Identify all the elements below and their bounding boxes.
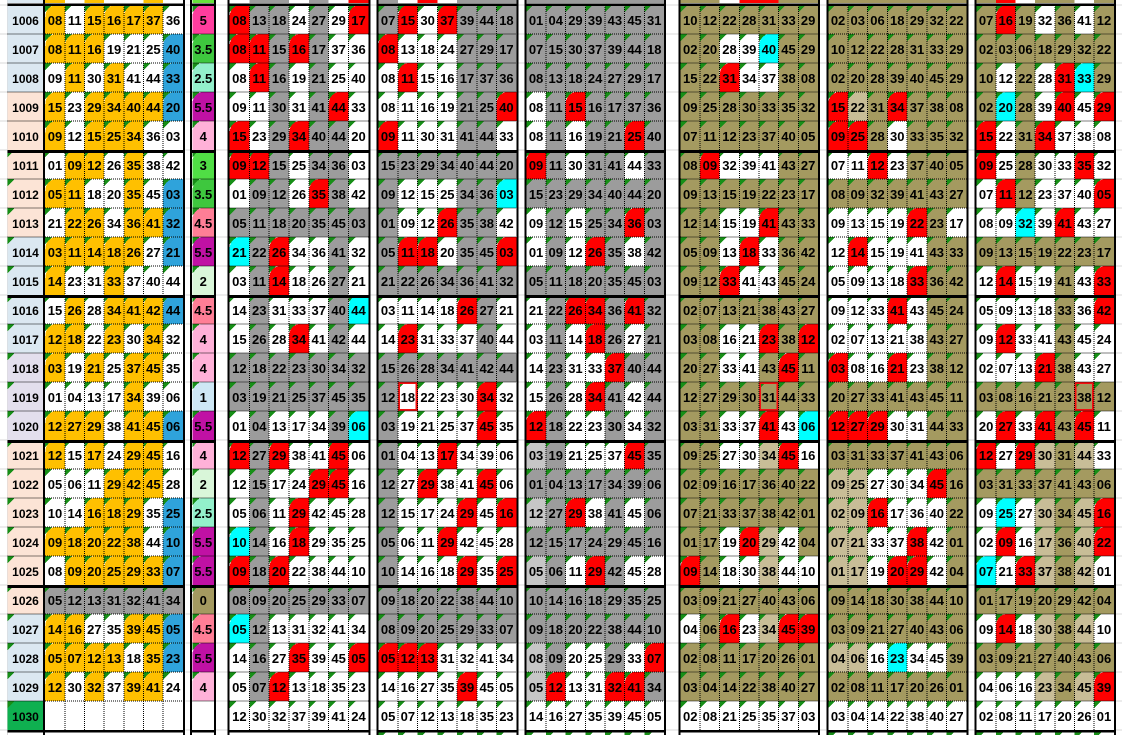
svg-text:32: 32: [949, 129, 963, 144]
svg-text:39: 39: [479, 448, 493, 463]
svg-text:14: 14: [851, 593, 866, 608]
svg-text:11: 11: [999, 187, 1013, 202]
svg-text:45: 45: [331, 216, 345, 231]
svg-text:08: 08: [529, 129, 543, 144]
svg-text:31: 31: [910, 42, 924, 57]
svg-text:33: 33: [722, 506, 736, 521]
svg-text:32: 32: [929, 13, 943, 28]
svg-text:37: 37: [146, 13, 160, 28]
svg-text:30: 30: [568, 158, 582, 173]
svg-text:21: 21: [460, 100, 474, 115]
svg-text:40: 40: [929, 158, 943, 173]
svg-text:45: 45: [929, 390, 943, 405]
svg-text:09: 09: [232, 158, 246, 173]
svg-text:22: 22: [949, 506, 963, 521]
svg-text:02: 02: [683, 42, 697, 57]
svg-text:34: 34: [460, 448, 475, 463]
svg-text:14: 14: [381, 680, 396, 695]
svg-text:27: 27: [87, 622, 101, 637]
svg-text:10: 10: [979, 71, 993, 86]
svg-text:43: 43: [608, 13, 622, 28]
svg-text:03: 03: [683, 419, 697, 434]
svg-text:08: 08: [703, 651, 717, 666]
svg-text:33: 33: [440, 332, 454, 347]
svg-text:07: 07: [851, 332, 865, 347]
svg-text:34: 34: [292, 129, 307, 144]
svg-text:1021: 1021: [12, 449, 39, 463]
svg-text:06: 06: [1097, 651, 1111, 666]
svg-text:25: 25: [331, 71, 345, 86]
svg-text:39: 39: [742, 158, 756, 173]
svg-text:43: 43: [1077, 477, 1091, 492]
svg-text:26: 26: [440, 216, 454, 231]
svg-text:45: 45: [627, 448, 641, 463]
svg-text:38: 38: [781, 71, 795, 86]
svg-text:36: 36: [1077, 303, 1091, 318]
svg-text:39: 39: [588, 13, 602, 28]
svg-text:29: 29: [1057, 42, 1071, 57]
svg-text:15: 15: [568, 100, 582, 115]
svg-text:11: 11: [871, 680, 885, 695]
svg-text:4.5: 4.5: [194, 216, 212, 231]
svg-text:42: 42: [166, 158, 180, 173]
svg-text:12: 12: [703, 274, 717, 289]
svg-text:18: 18: [420, 245, 434, 260]
svg-text:32: 32: [801, 100, 815, 115]
svg-text:15: 15: [722, 187, 736, 202]
svg-text:38: 38: [762, 680, 776, 695]
svg-text:23: 23: [1038, 187, 1052, 202]
svg-text:27: 27: [312, 13, 326, 28]
svg-text:12: 12: [48, 332, 62, 347]
svg-text:17: 17: [292, 419, 306, 434]
svg-text:43: 43: [781, 158, 795, 173]
svg-text:33: 33: [499, 129, 513, 144]
svg-text:31: 31: [703, 419, 717, 434]
svg-text:1030: 1030: [12, 710, 39, 724]
svg-text:05: 05: [381, 245, 395, 260]
svg-text:25: 25: [742, 709, 756, 724]
svg-text:24: 24: [292, 13, 307, 28]
svg-text:33: 33: [781, 13, 795, 28]
svg-text:15: 15: [549, 535, 563, 550]
svg-text:40: 40: [126, 100, 140, 115]
svg-text:38: 38: [910, 535, 924, 550]
svg-text:12: 12: [252, 622, 266, 637]
svg-text:22: 22: [1097, 535, 1111, 550]
svg-text:09: 09: [831, 216, 845, 231]
svg-text:21: 21: [87, 361, 101, 376]
svg-text:31: 31: [999, 477, 1013, 492]
svg-text:41: 41: [1038, 419, 1052, 434]
svg-text:24: 24: [949, 303, 964, 318]
svg-text:08: 08: [48, 42, 62, 57]
svg-text:17: 17: [890, 506, 904, 521]
svg-text:06: 06: [999, 680, 1013, 695]
svg-text:28: 28: [272, 332, 286, 347]
svg-text:20: 20: [851, 71, 865, 86]
svg-text:33: 33: [722, 419, 736, 434]
svg-text:44: 44: [781, 390, 796, 405]
svg-text:38: 38: [460, 593, 474, 608]
svg-text:43: 43: [781, 419, 795, 434]
svg-text:29: 29: [440, 535, 454, 550]
svg-text:28: 28: [890, 42, 904, 57]
svg-text:25: 25: [999, 506, 1013, 521]
svg-text:03: 03: [232, 390, 246, 405]
svg-text:34: 34: [588, 390, 603, 405]
svg-text:25: 25: [499, 564, 513, 579]
svg-text:10: 10: [529, 593, 543, 608]
svg-text:33: 33: [870, 303, 884, 318]
svg-text:11: 11: [549, 332, 563, 347]
svg-text:37: 37: [126, 274, 140, 289]
svg-text:13: 13: [252, 13, 266, 28]
svg-text:33: 33: [1018, 419, 1032, 434]
svg-text:09: 09: [851, 274, 865, 289]
svg-text:21: 21: [381, 274, 395, 289]
svg-text:23: 23: [440, 390, 454, 405]
svg-text:34: 34: [312, 419, 327, 434]
svg-text:16: 16: [722, 622, 736, 637]
svg-text:27: 27: [703, 361, 717, 376]
svg-text:17: 17: [647, 71, 661, 86]
svg-text:08: 08: [1097, 129, 1111, 144]
svg-text:13: 13: [292, 680, 306, 695]
svg-text:29: 29: [87, 419, 101, 434]
svg-text:14: 14: [48, 274, 63, 289]
svg-text:25: 25: [588, 651, 602, 666]
svg-text:34: 34: [351, 622, 366, 637]
svg-text:22: 22: [67, 216, 81, 231]
svg-text:33: 33: [949, 245, 963, 260]
svg-text:44: 44: [781, 564, 796, 579]
svg-text:44: 44: [479, 129, 494, 144]
svg-text:27: 27: [1038, 651, 1052, 666]
svg-text:35: 35: [292, 651, 306, 666]
svg-text:45: 45: [331, 506, 345, 521]
svg-text:05: 05: [232, 680, 246, 695]
svg-text:35: 35: [146, 506, 160, 521]
svg-text:33: 33: [870, 535, 884, 550]
svg-text:05: 05: [381, 709, 395, 724]
svg-text:14: 14: [549, 593, 564, 608]
svg-text:19: 19: [1018, 593, 1032, 608]
svg-text:29: 29: [608, 593, 622, 608]
svg-text:01: 01: [48, 390, 62, 405]
svg-text:37: 37: [627, 100, 641, 115]
svg-text:23: 23: [67, 100, 81, 115]
svg-text:34: 34: [647, 680, 662, 695]
svg-text:07: 07: [703, 303, 717, 318]
svg-text:42: 42: [146, 303, 160, 318]
svg-text:14: 14: [703, 216, 718, 231]
svg-text:11: 11: [401, 100, 415, 115]
svg-text:02: 02: [683, 709, 697, 724]
svg-text:38: 38: [929, 100, 943, 115]
svg-text:29: 29: [460, 564, 474, 579]
svg-text:35: 35: [331, 535, 345, 550]
svg-text:42: 42: [647, 245, 661, 260]
svg-text:39: 39: [126, 680, 140, 695]
svg-text:31: 31: [851, 448, 865, 463]
svg-text:23: 23: [107, 332, 121, 347]
svg-text:37: 37: [440, 13, 454, 28]
svg-text:18: 18: [252, 564, 266, 579]
svg-text:16: 16: [87, 42, 101, 57]
svg-text:1011: 1011: [12, 159, 38, 173]
svg-text:09: 09: [979, 332, 993, 347]
svg-text:35: 35: [126, 158, 140, 173]
svg-text:15: 15: [401, 506, 415, 521]
svg-text:45: 45: [929, 71, 943, 86]
svg-text:17: 17: [351, 13, 365, 28]
svg-text:18: 18: [722, 564, 736, 579]
svg-text:25: 25: [440, 187, 454, 202]
svg-text:12: 12: [831, 245, 845, 260]
svg-text:34: 34: [312, 158, 327, 173]
svg-text:40: 40: [1057, 100, 1071, 115]
svg-text:09: 09: [979, 622, 993, 637]
svg-text:15: 15: [1018, 274, 1032, 289]
svg-text:21: 21: [420, 419, 434, 434]
svg-text:13: 13: [440, 709, 454, 724]
svg-text:19: 19: [588, 129, 602, 144]
svg-text:12: 12: [1097, 390, 1111, 405]
svg-text:15: 15: [722, 216, 736, 231]
svg-text:21: 21: [499, 303, 513, 318]
svg-text:07: 07: [683, 129, 697, 144]
svg-text:05: 05: [831, 274, 845, 289]
svg-text:02: 02: [683, 477, 697, 492]
svg-text:29: 29: [126, 448, 140, 463]
svg-text:26: 26: [460, 303, 474, 318]
svg-text:36: 36: [1057, 13, 1071, 28]
svg-text:45: 45: [627, 709, 641, 724]
svg-text:20: 20: [107, 187, 121, 202]
svg-text:45: 45: [627, 564, 641, 579]
svg-text:03: 03: [979, 651, 993, 666]
svg-text:22: 22: [401, 274, 415, 289]
svg-text:43: 43: [1057, 332, 1071, 347]
svg-text:23: 23: [252, 129, 266, 144]
svg-text:09: 09: [831, 477, 845, 492]
svg-text:30: 30: [742, 564, 756, 579]
svg-text:28: 28: [166, 477, 180, 492]
svg-text:25: 25: [588, 448, 602, 463]
svg-text:18: 18: [742, 245, 756, 260]
svg-text:39: 39: [1038, 100, 1052, 115]
svg-text:42: 42: [351, 187, 365, 202]
svg-text:42: 42: [781, 506, 795, 521]
svg-text:34: 34: [910, 477, 925, 492]
svg-text:08: 08: [979, 216, 993, 231]
svg-text:25: 25: [440, 419, 454, 434]
svg-text:25: 25: [999, 158, 1013, 173]
svg-text:38: 38: [1077, 129, 1091, 144]
svg-text:08: 08: [381, 42, 395, 57]
svg-text:2: 2: [200, 274, 207, 289]
svg-text:12: 12: [67, 129, 81, 144]
svg-text:12: 12: [851, 42, 865, 57]
svg-text:03: 03: [166, 129, 180, 144]
svg-text:12: 12: [529, 535, 543, 550]
svg-text:21: 21: [647, 332, 661, 347]
svg-text:36: 36: [627, 216, 641, 231]
svg-text:16: 16: [999, 13, 1013, 28]
svg-text:08: 08: [529, 100, 543, 115]
svg-text:37: 37: [1057, 187, 1071, 202]
svg-text:22: 22: [252, 245, 266, 260]
svg-text:24: 24: [1097, 332, 1112, 347]
svg-text:05: 05: [381, 535, 395, 550]
svg-text:34: 34: [1057, 506, 1072, 521]
svg-text:11: 11: [549, 274, 563, 289]
svg-text:31: 31: [272, 303, 286, 318]
svg-text:16: 16: [870, 506, 884, 521]
svg-text:06: 06: [801, 593, 815, 608]
svg-text:33: 33: [166, 71, 180, 86]
svg-text:41: 41: [460, 129, 474, 144]
svg-text:12: 12: [683, 216, 697, 231]
svg-text:24: 24: [588, 71, 603, 86]
svg-text:42: 42: [1077, 593, 1091, 608]
svg-text:44: 44: [627, 42, 642, 57]
svg-text:30: 30: [272, 100, 286, 115]
svg-text:32: 32: [1077, 42, 1091, 57]
svg-text:38: 38: [762, 303, 776, 318]
svg-text:07: 07: [979, 564, 993, 579]
svg-text:12: 12: [549, 680, 563, 695]
svg-text:4.5: 4.5: [194, 622, 212, 637]
svg-text:26: 26: [87, 216, 101, 231]
svg-text:18: 18: [549, 622, 563, 637]
svg-text:07: 07: [999, 361, 1013, 376]
svg-text:15: 15: [381, 158, 395, 173]
svg-text:09: 09: [252, 593, 266, 608]
svg-text:28: 28: [1038, 71, 1052, 86]
svg-text:30: 30: [890, 477, 904, 492]
svg-text:11: 11: [851, 158, 865, 173]
svg-text:1018: 1018: [12, 362, 39, 376]
svg-text:28: 28: [351, 506, 365, 521]
svg-text:22: 22: [801, 477, 815, 492]
svg-text:38: 38: [762, 564, 776, 579]
svg-text:41: 41: [479, 274, 493, 289]
svg-text:4: 4: [200, 332, 208, 347]
svg-text:17: 17: [420, 506, 434, 521]
svg-text:43: 43: [781, 593, 795, 608]
svg-text:22: 22: [1057, 245, 1071, 260]
svg-text:18: 18: [67, 535, 81, 550]
svg-text:29: 29: [910, 564, 924, 579]
svg-text:33: 33: [146, 564, 160, 579]
svg-text:42: 42: [781, 535, 795, 550]
svg-text:40: 40: [460, 158, 474, 173]
svg-text:12: 12: [87, 651, 101, 666]
svg-text:14: 14: [703, 564, 718, 579]
svg-text:20: 20: [87, 535, 101, 550]
svg-text:21: 21: [312, 71, 326, 86]
svg-text:01: 01: [801, 651, 815, 666]
svg-text:25: 25: [851, 129, 865, 144]
svg-text:1014: 1014: [12, 246, 39, 260]
svg-text:15: 15: [420, 187, 434, 202]
svg-text:40: 40: [608, 187, 622, 202]
svg-text:13: 13: [568, 680, 582, 695]
svg-text:31: 31: [292, 622, 306, 637]
svg-text:19: 19: [107, 42, 121, 57]
svg-text:27: 27: [999, 448, 1013, 463]
svg-text:5.5: 5.5: [194, 100, 212, 115]
svg-text:29: 29: [801, 13, 815, 28]
svg-text:12: 12: [232, 477, 246, 492]
svg-text:13: 13: [401, 42, 415, 57]
svg-text:33: 33: [1057, 303, 1071, 318]
svg-text:09: 09: [703, 158, 717, 173]
svg-text:29: 29: [87, 100, 101, 115]
svg-text:36: 36: [351, 42, 365, 57]
svg-text:16: 16: [949, 477, 963, 492]
svg-text:45: 45: [627, 535, 641, 550]
svg-text:44: 44: [146, 71, 161, 86]
svg-text:03: 03: [851, 13, 865, 28]
svg-text:14: 14: [999, 274, 1014, 289]
svg-text:1013: 1013: [12, 217, 39, 231]
svg-text:16: 16: [1018, 535, 1032, 550]
svg-text:07: 07: [252, 680, 266, 695]
svg-text:40: 40: [499, 100, 513, 115]
svg-text:18: 18: [107, 506, 121, 521]
svg-text:18: 18: [499, 13, 513, 28]
svg-text:05: 05: [949, 158, 963, 173]
svg-text:44: 44: [627, 187, 642, 202]
svg-text:38: 38: [292, 448, 306, 463]
svg-text:45: 45: [331, 477, 345, 492]
svg-text:06: 06: [499, 477, 513, 492]
svg-text:35: 35: [1077, 158, 1091, 173]
svg-text:34: 34: [588, 187, 603, 202]
svg-text:20: 20: [910, 680, 924, 695]
svg-text:17: 17: [87, 448, 101, 463]
svg-text:4: 4: [200, 680, 208, 695]
svg-text:38: 38: [910, 332, 924, 347]
svg-text:23: 23: [549, 361, 563, 376]
svg-text:03: 03: [351, 158, 365, 173]
svg-text:41: 41: [1057, 216, 1071, 231]
svg-text:20: 20: [762, 651, 776, 666]
svg-text:28: 28: [870, 129, 884, 144]
svg-text:05: 05: [232, 622, 246, 637]
svg-text:14: 14: [232, 303, 247, 318]
svg-text:28: 28: [420, 361, 434, 376]
svg-text:39: 39: [331, 419, 345, 434]
svg-text:21: 21: [166, 245, 180, 260]
svg-text:24: 24: [440, 42, 455, 57]
svg-text:11: 11: [68, 245, 82, 260]
svg-text:26: 26: [1077, 709, 1091, 724]
svg-text:43: 43: [910, 390, 924, 405]
svg-text:38: 38: [1057, 564, 1071, 579]
svg-text:16: 16: [351, 477, 365, 492]
svg-text:18: 18: [292, 274, 306, 289]
svg-text:31: 31: [1057, 448, 1071, 463]
svg-text:35: 35: [440, 680, 454, 695]
svg-text:29: 29: [1057, 593, 1071, 608]
svg-text:09: 09: [401, 216, 415, 231]
svg-text:5: 5: [200, 13, 207, 28]
svg-text:01: 01: [48, 158, 62, 173]
